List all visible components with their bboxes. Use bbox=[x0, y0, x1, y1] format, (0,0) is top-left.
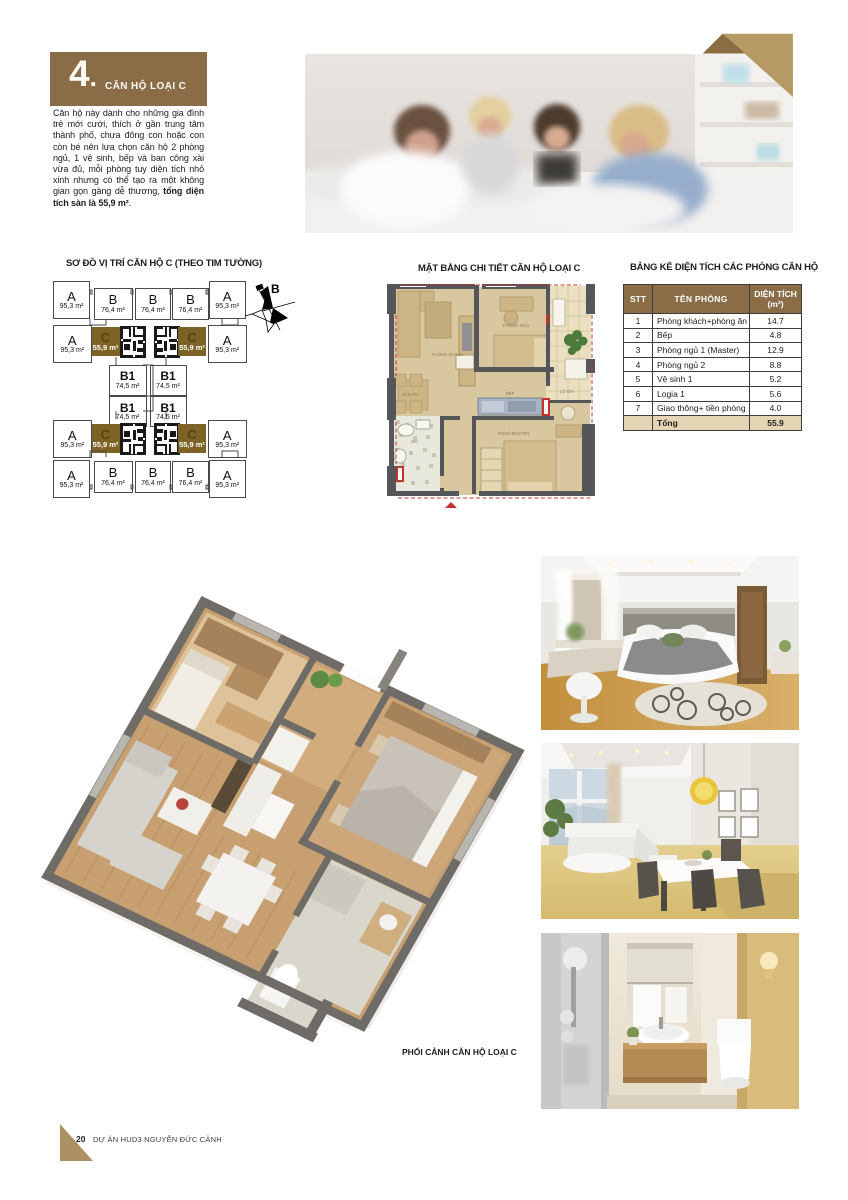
svg-text:BẾP: BẾP bbox=[506, 391, 515, 396]
svg-text:SẢN ĂN: SẢN ĂN bbox=[402, 392, 418, 397]
svg-text:PHÒNG KHÁCH: PHÒNG KHÁCH bbox=[432, 352, 463, 357]
svg-text:PHÒNG NGỦ: PHÒNG NGỦ bbox=[503, 323, 529, 328]
svg-text:P.NGỦ MASTER: P.NGỦ MASTER bbox=[498, 431, 529, 436]
svg-text:B: B bbox=[271, 282, 280, 296]
svg-text:LÔ GIA: LÔ GIA bbox=[560, 389, 574, 394]
svg-text:WC: WC bbox=[411, 439, 418, 444]
